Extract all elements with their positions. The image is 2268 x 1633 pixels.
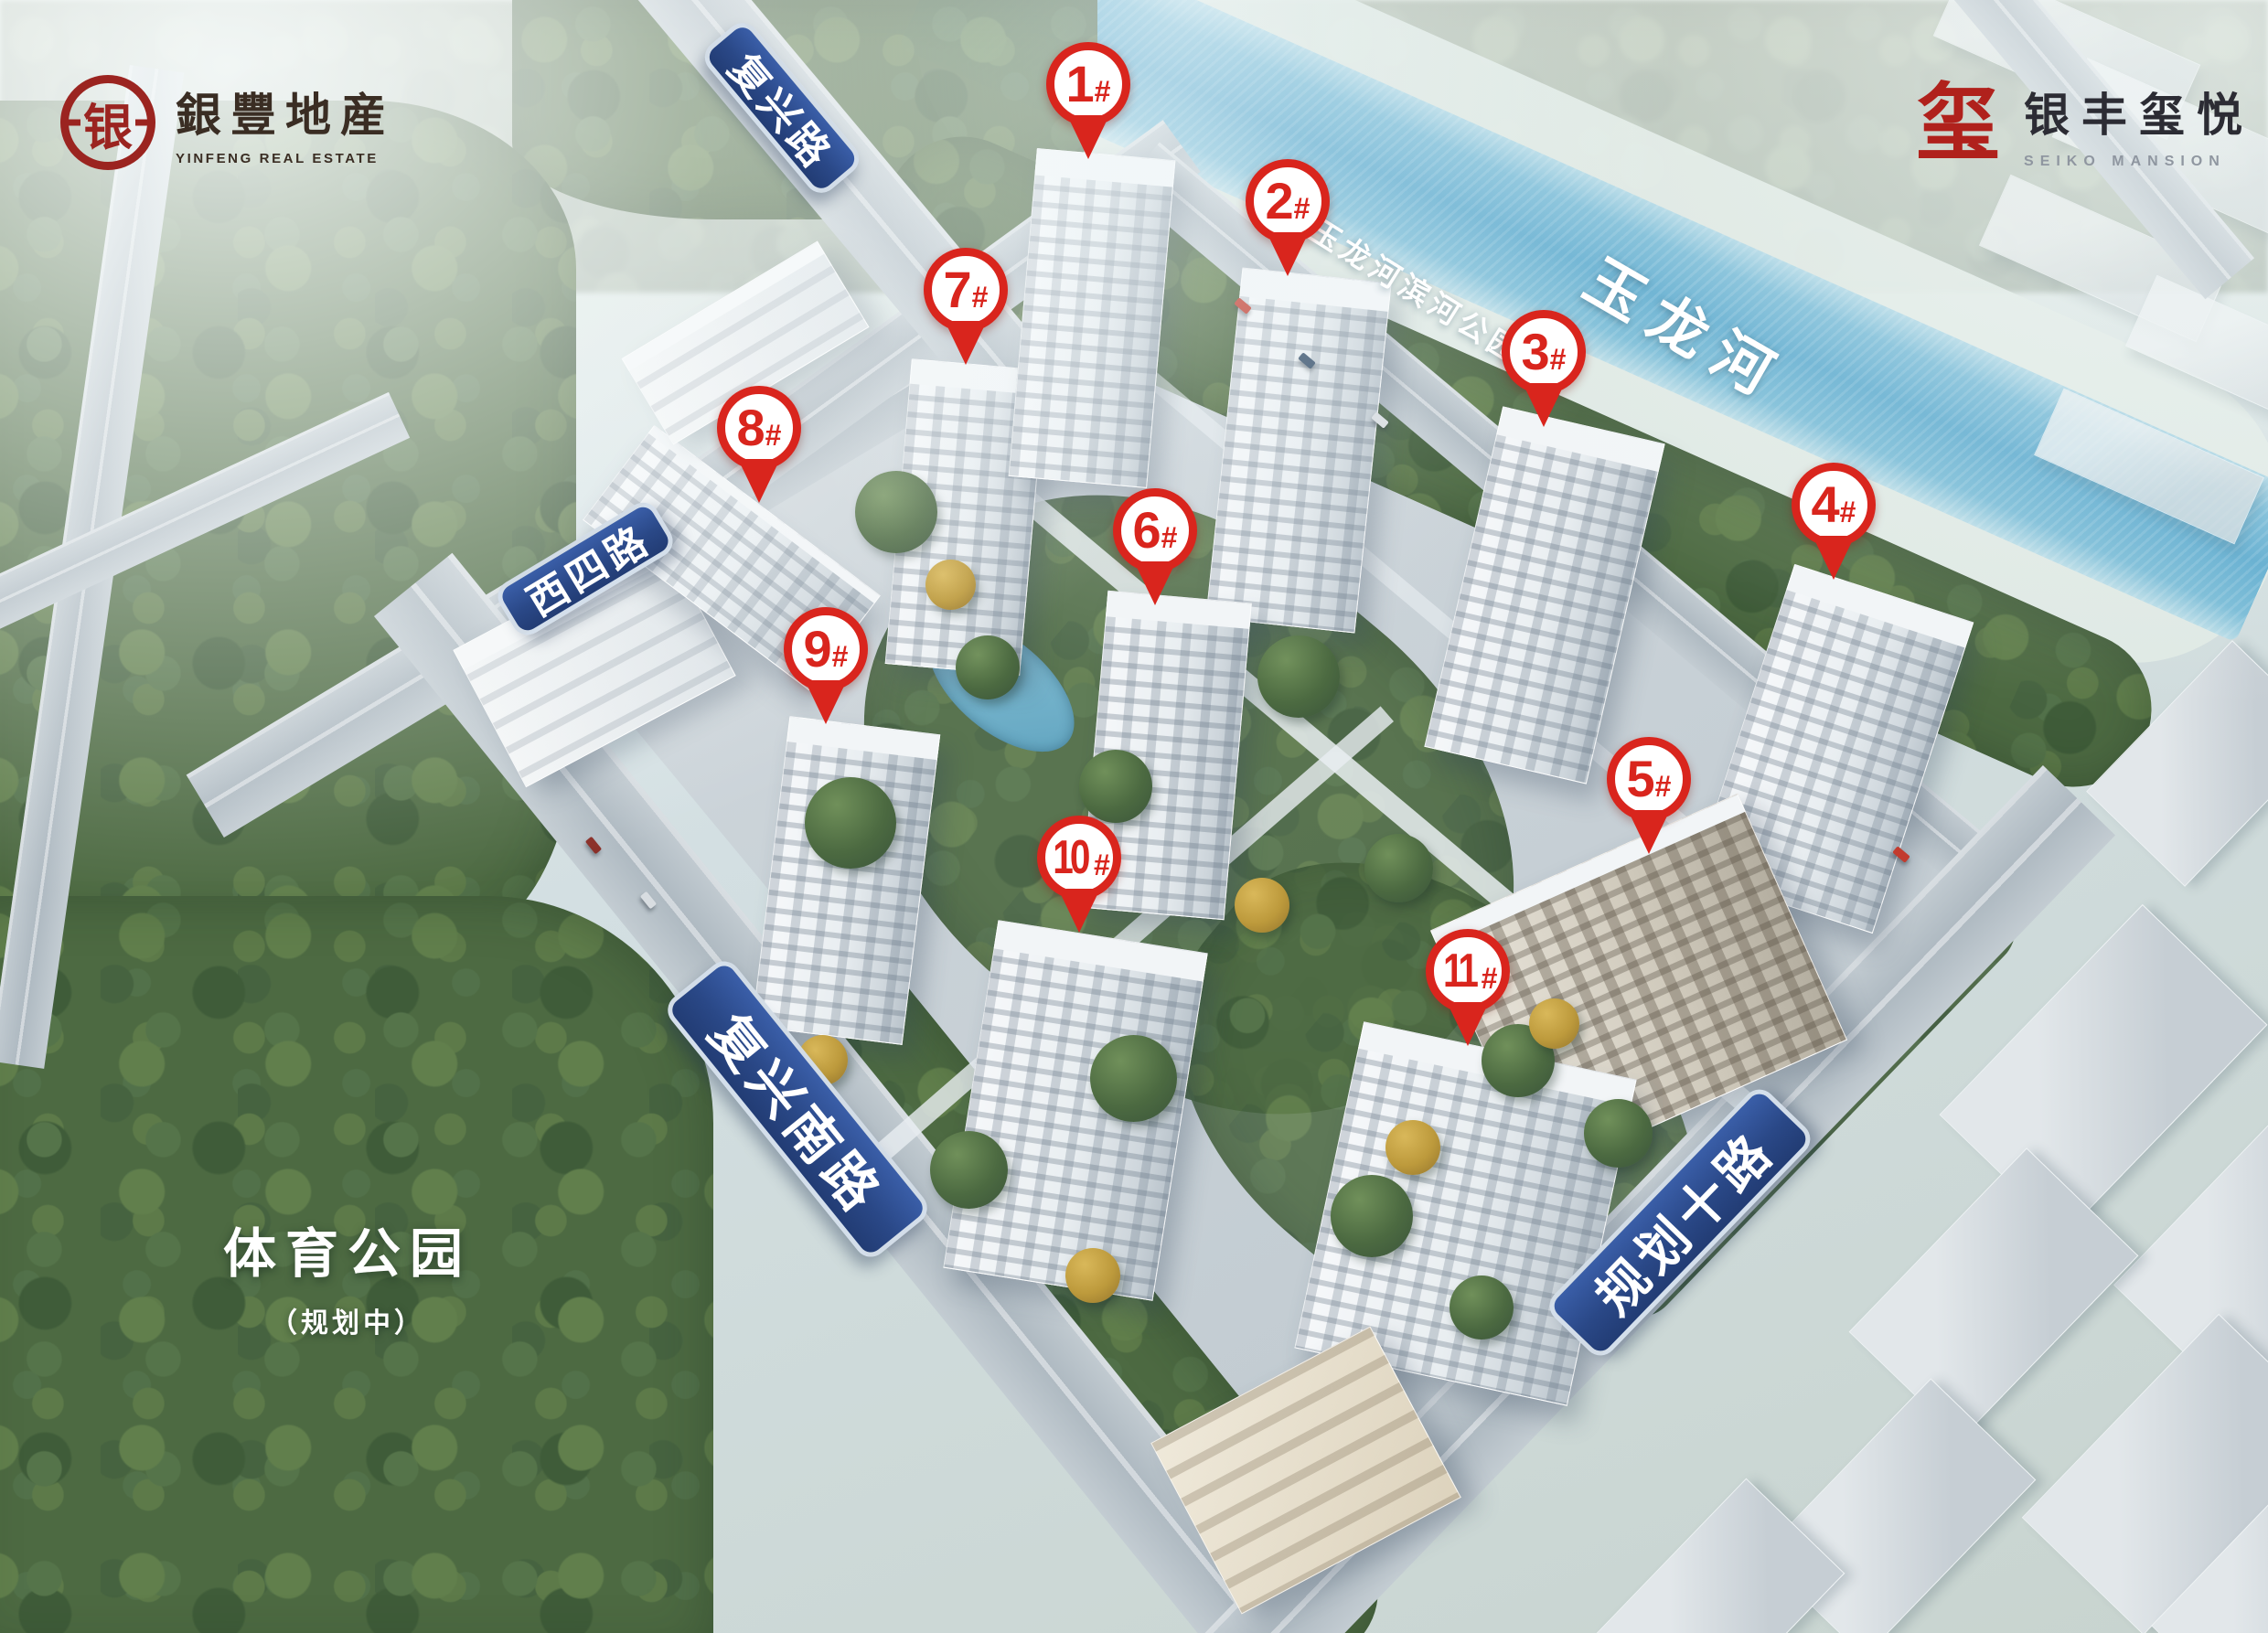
marker-number: 7 bbox=[944, 264, 970, 315]
seiko-mansion-logo: 玺 银丰玺悦 SEIKO MANSION bbox=[1916, 79, 2254, 170]
yellow-tree bbox=[925, 560, 976, 610]
yinfeng-name-zh: 銀豐地産 bbox=[176, 79, 395, 144]
marker-pin-circle: 10# bbox=[1037, 816, 1121, 900]
yinfeng-seal-icon: 银 bbox=[60, 75, 155, 170]
yinfeng-logo-text: 銀豐地産 YINFENG REAL ESTATE bbox=[176, 79, 395, 166]
marker-pin-pointer bbox=[1067, 115, 1109, 159]
yellow-tree bbox=[1385, 1120, 1440, 1175]
seiko-seal-icon: 玺 bbox=[1916, 84, 2000, 164]
marker-hash: # bbox=[1550, 343, 1567, 377]
yellow-tree bbox=[1065, 1248, 1120, 1303]
marker-hash: # bbox=[1482, 962, 1498, 996]
marker-pin-pointer bbox=[1267, 232, 1309, 276]
seiko-name-zh: 银丰玺悦 bbox=[2024, 79, 2254, 144]
marker-number: 9 bbox=[804, 624, 830, 675]
tree bbox=[1079, 750, 1152, 823]
tree bbox=[1584, 1099, 1653, 1168]
marker-pin-pointer bbox=[1628, 810, 1670, 854]
marker-hash: # bbox=[1294, 192, 1311, 226]
marker-hash: # bbox=[1094, 849, 1110, 882]
marker-pin-circle: 4# bbox=[1792, 463, 1876, 547]
marker-pin-circle: 7# bbox=[924, 248, 1008, 332]
tree bbox=[930, 1131, 1008, 1209]
marker-pin-pointer bbox=[1813, 536, 1855, 580]
tree bbox=[1331, 1175, 1413, 1257]
seiko-logo-text: 银丰玺悦 SEIKO MANSION bbox=[2024, 79, 2254, 170]
building-marker-6: 6# bbox=[1113, 488, 1197, 605]
marker-pin-pointer bbox=[1447, 1002, 1489, 1046]
yinfeng-seal-char: 银 bbox=[83, 87, 133, 159]
yellow-tree bbox=[1529, 998, 1579, 1049]
building-marker-3: 3# bbox=[1502, 310, 1586, 427]
marker-hash: # bbox=[1655, 770, 1672, 804]
building-marker-8: 8# bbox=[717, 386, 801, 503]
marker-number: 3 bbox=[1522, 326, 1548, 378]
marker-pin-pointer bbox=[1058, 889, 1100, 933]
marker-pin-pointer bbox=[1523, 383, 1565, 427]
building-marker-9: 9# bbox=[784, 607, 868, 724]
sports-park-subtitle: （规划中） bbox=[223, 1300, 472, 1340]
yinfeng-name-en: YINFENG REAL ESTATE bbox=[176, 151, 395, 166]
marker-hash: # bbox=[1095, 75, 1111, 109]
marker-pin-circle: 6# bbox=[1113, 488, 1197, 572]
tree bbox=[956, 635, 1020, 699]
building-marker-5: 5# bbox=[1607, 737, 1691, 854]
marker-hash: # bbox=[1161, 521, 1178, 555]
sports-park-title: 体育公园 bbox=[223, 1211, 472, 1287]
marker-number: 1 bbox=[1066, 59, 1093, 110]
marker-pin-circle: 8# bbox=[717, 386, 801, 470]
marker-hash: # bbox=[972, 281, 989, 315]
marker-number: 10 bbox=[1053, 834, 1086, 881]
marker-hash: # bbox=[765, 419, 782, 453]
marker-pin-circle: 1# bbox=[1046, 42, 1130, 126]
marker-number: 4 bbox=[1812, 479, 1838, 530]
building-marker-7: 7# bbox=[924, 248, 1008, 365]
marker-pin-circle: 5# bbox=[1607, 737, 1691, 821]
marker-number: 11 bbox=[1443, 947, 1475, 995]
building-1 bbox=[1009, 148, 1176, 488]
building-marker-11: 11# bbox=[1426, 929, 1510, 1046]
marker-number: 6 bbox=[1133, 505, 1160, 556]
building-marker-1: 1# bbox=[1046, 42, 1130, 159]
yinfeng-logo: 银 銀豐地産 YINFENG REAL ESTATE bbox=[60, 75, 395, 170]
tree bbox=[805, 777, 896, 869]
tree bbox=[1257, 635, 1340, 718]
marker-pin-pointer bbox=[805, 680, 847, 724]
marker-hash: # bbox=[832, 640, 849, 674]
marker-pin-circle: 11# bbox=[1426, 929, 1510, 1013]
marker-number: 8 bbox=[737, 402, 764, 454]
marker-pin-pointer bbox=[945, 321, 987, 365]
marker-pin-circle: 3# bbox=[1502, 310, 1586, 394]
tree bbox=[1090, 1035, 1177, 1122]
yellow-tree bbox=[1235, 878, 1289, 933]
seiko-name-en: SEIKO MANSION bbox=[2024, 154, 2254, 170]
tree bbox=[855, 471, 937, 553]
sports-park-label: 体育公园 （规划中） bbox=[223, 1211, 472, 1340]
marker-pin-pointer bbox=[738, 459, 780, 503]
building-marker-10: 10# bbox=[1037, 816, 1121, 933]
building-marker-4: 4# bbox=[1792, 463, 1876, 580]
aerial-site-plan: 复兴路西四路复兴南路规划十路玉龙河玉龙河滨河公园 1#2#3#4#5#6#7#8… bbox=[0, 0, 2268, 1633]
tree bbox=[1450, 1275, 1514, 1339]
marker-pin-circle: 9# bbox=[784, 607, 868, 691]
marker-hash: # bbox=[1840, 496, 1856, 529]
marker-pin-pointer bbox=[1134, 561, 1176, 605]
marker-number: 2 bbox=[1266, 176, 1292, 227]
marker-number: 5 bbox=[1627, 753, 1653, 805]
marker-pin-circle: 2# bbox=[1246, 159, 1330, 243]
building-marker-2: 2# bbox=[1246, 159, 1330, 276]
tree bbox=[1364, 834, 1433, 902]
city-block bbox=[1594, 1478, 1845, 1633]
